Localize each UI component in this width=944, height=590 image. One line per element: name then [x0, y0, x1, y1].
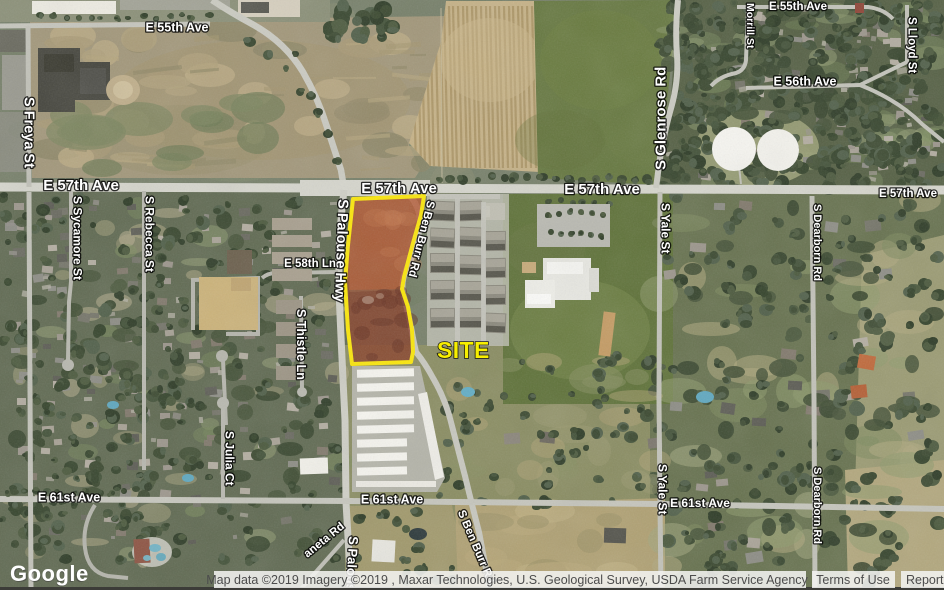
- svg-text:E 57th Ave: E 57th Ave: [43, 177, 119, 194]
- svg-text:S Julia Ct: S Julia Ct: [222, 431, 236, 486]
- svg-text:E 57th Ave: E 57th Ave: [361, 180, 437, 197]
- svg-text:S Sycamore St: S Sycamore St: [70, 196, 84, 280]
- svg-text:E 56th Ave: E 56th Ave: [774, 74, 837, 88]
- svg-text:Morrill St: Morrill St: [744, 3, 756, 49]
- svg-text:Terms of Use: Terms of Use: [816, 573, 890, 587]
- svg-text:Map data ©2019 Imagery ©2019 ,: Map data ©2019 Imagery ©2019 , Maxar Tec…: [206, 573, 808, 587]
- svg-text:E 57th Ave: E 57th Ave: [564, 181, 640, 198]
- svg-text:S Glenrose Rd: S Glenrose Rd: [653, 67, 670, 170]
- svg-text:Report: Report: [906, 573, 944, 587]
- svg-text:S Rebecca St: S Rebecca St: [142, 196, 156, 272]
- svg-text:E 61st Ave: E 61st Ave: [38, 490, 100, 504]
- svg-text:S Thistle Ln: S Thistle Ln: [294, 309, 308, 380]
- svg-text:S Dearborn Rd: S Dearborn Rd: [811, 204, 823, 281]
- svg-text:Google: Google: [10, 561, 89, 586]
- svg-text:E 58th Ln: E 58th Ln: [284, 258, 336, 270]
- svg-text:S Freya St: S Freya St: [21, 97, 37, 168]
- svg-text:S Yale St: S Yale St: [658, 203, 672, 253]
- svg-text:SITE: SITE: [437, 337, 490, 363]
- svg-text:S Dearborn Rd: S Dearborn Rd: [811, 467, 823, 544]
- svg-text:E 61st Ave: E 61st Ave: [670, 496, 730, 510]
- svg-text:E 55th Ave: E 55th Ave: [146, 20, 209, 34]
- svg-text:E 55th Ave: E 55th Ave: [769, 1, 827, 13]
- svg-text:S Yale St: S Yale St: [655, 464, 669, 514]
- svg-text:S Lloyd St: S Lloyd St: [906, 17, 918, 73]
- svg-text:E 61st Ave: E 61st Ave: [361, 492, 423, 506]
- svg-text:E 57th Ave: E 57th Ave: [879, 188, 937, 200]
